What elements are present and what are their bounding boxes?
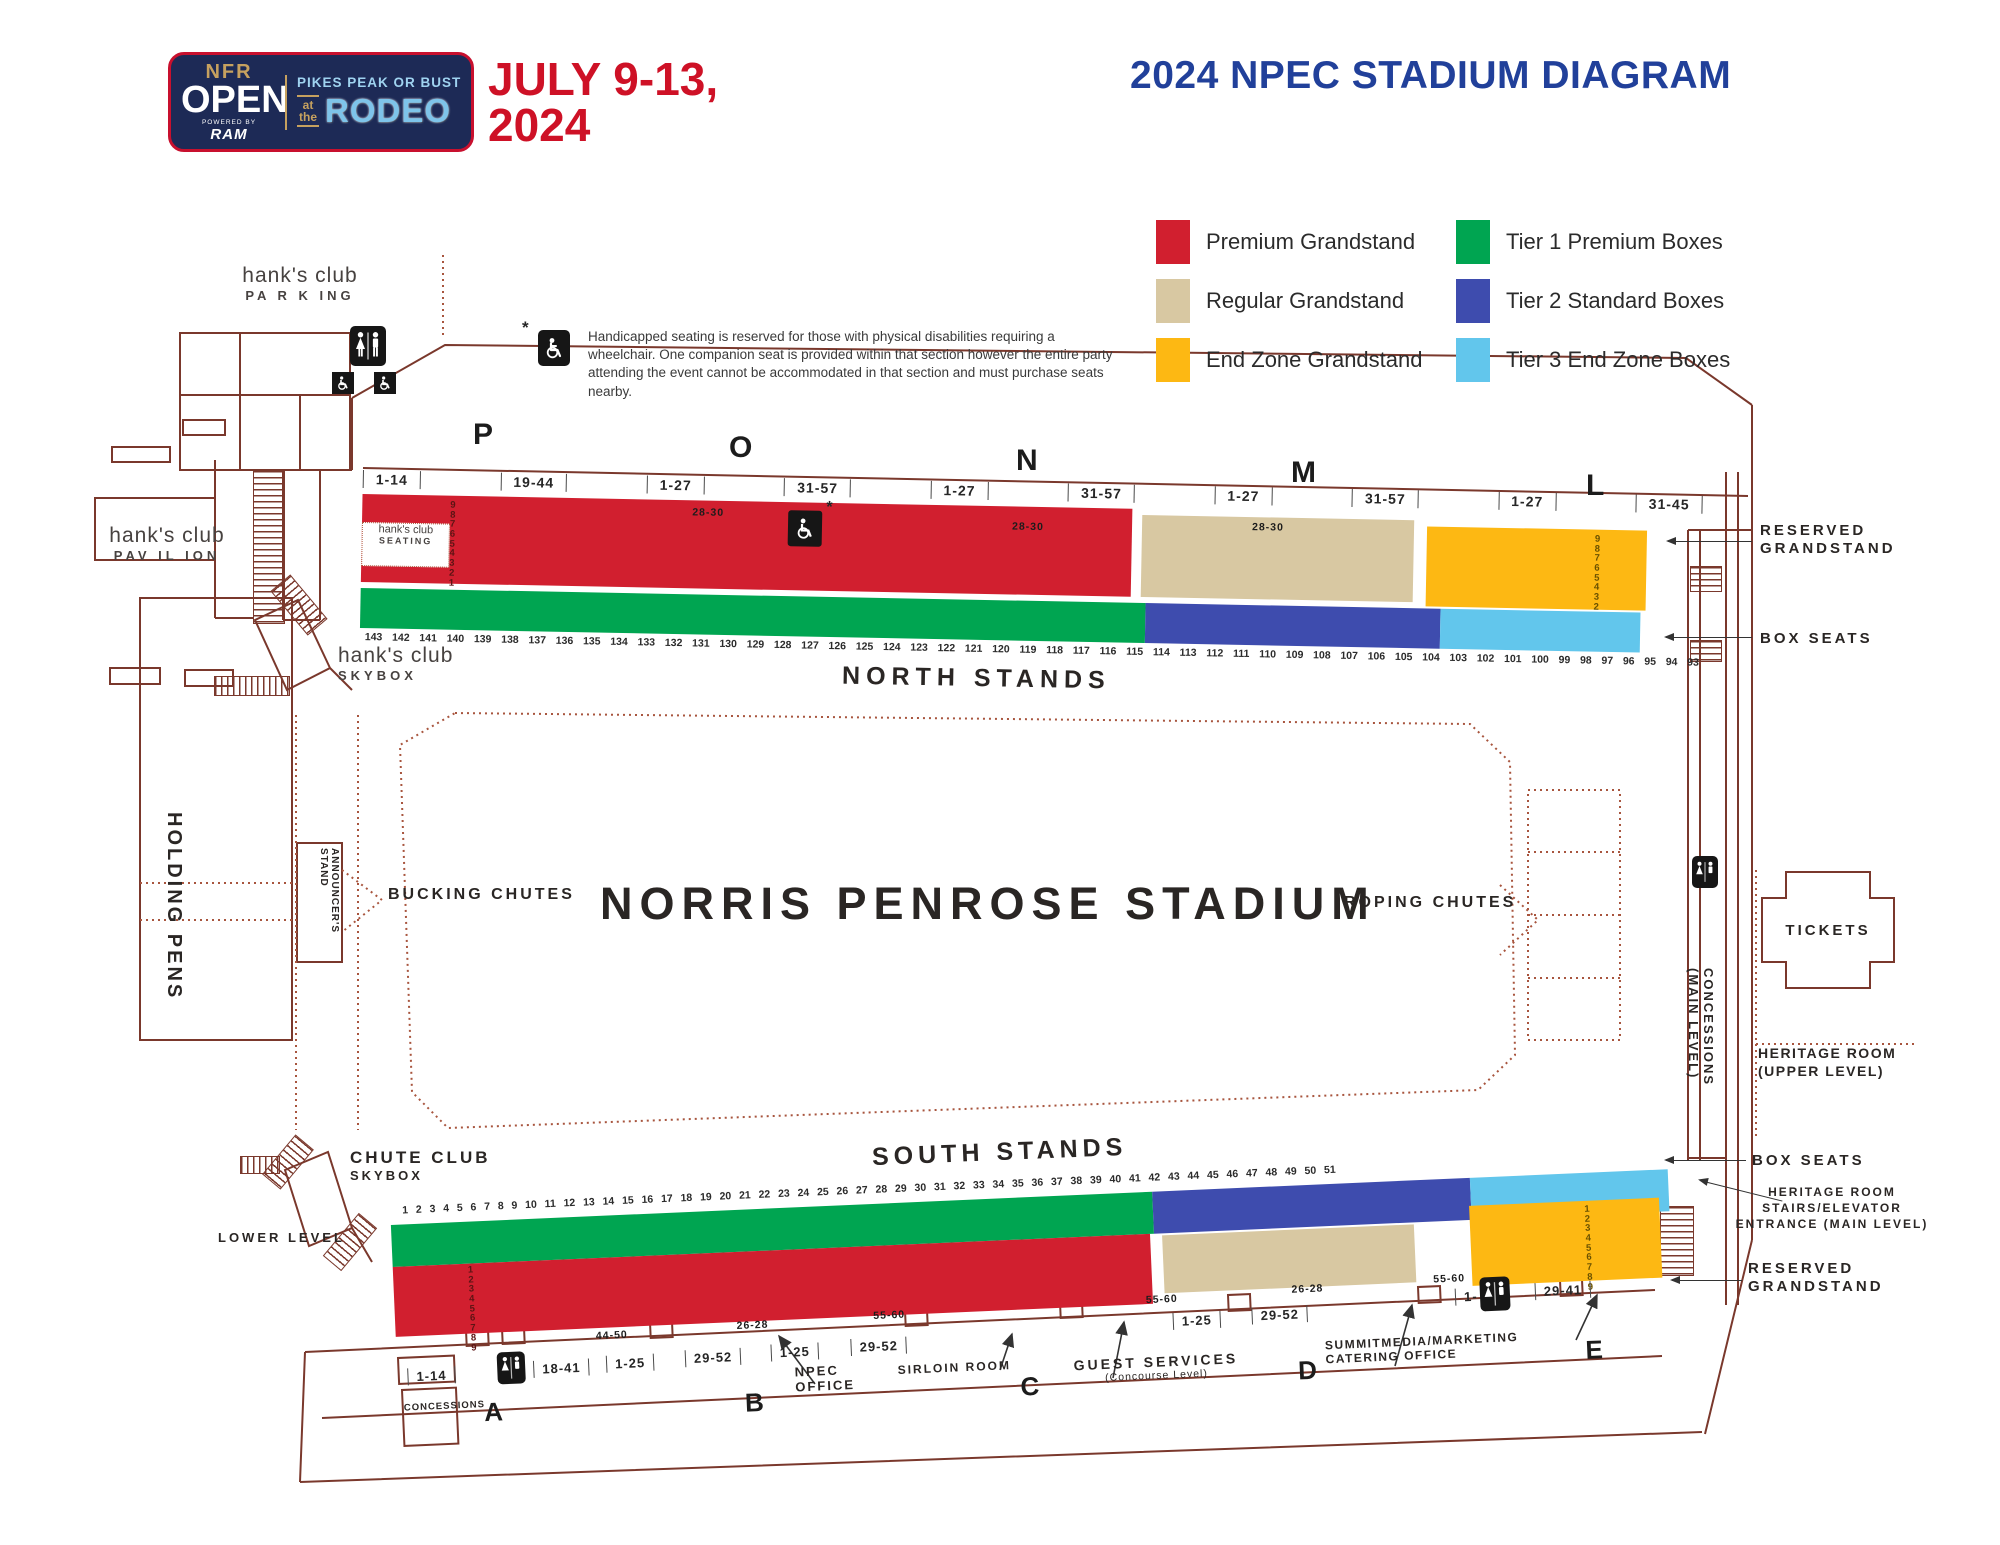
door-label: 26-28 xyxy=(736,1319,768,1332)
north-stands-label: NORTH STANDS xyxy=(842,662,1111,696)
box-number: 47 xyxy=(1246,1167,1258,1179)
page-title: 2024 NPEC STADIUM DIAGRAM xyxy=(1130,54,1650,98)
seat-range: 1-25 xyxy=(1172,1311,1221,1330)
box-number: 106 xyxy=(1368,650,1386,662)
box-number: 100 xyxy=(1531,653,1549,665)
box-number: 118 xyxy=(1046,644,1063,656)
logo-tagline: PIKES PEAK OR BUST xyxy=(297,75,461,90)
door-label: 26-28 xyxy=(1291,1282,1323,1295)
box-number: 97 xyxy=(1601,655,1613,667)
box-number: 23 xyxy=(778,1188,790,1200)
reserved-grandstand-north-label: RESERVED GRANDSTAND xyxy=(1760,522,1920,558)
box-number: 1 xyxy=(402,1204,408,1216)
box-number: 25 xyxy=(817,1186,829,1198)
accessible-icon xyxy=(332,372,354,394)
box-number: 120 xyxy=(992,643,1010,655)
box-number: 112 xyxy=(1206,647,1223,659)
box-number: 122 xyxy=(937,642,955,654)
chute-club-skybox-label: CHUTE CLUB SKYBOX xyxy=(350,1148,491,1183)
legend-item: Tier 3 End Zone Boxes xyxy=(1456,330,1786,389)
section-letter: N xyxy=(1016,444,1038,478)
event-dates: JULY 9-13, 2024 xyxy=(488,56,718,148)
legend-label: Tier 3 End Zone Boxes xyxy=(1506,347,1730,373)
legend-swatch xyxy=(1156,279,1190,323)
door-label: 55-60 xyxy=(873,1309,905,1322)
seat-range: 29-52 xyxy=(1251,1305,1308,1324)
seat-range: 19-44 xyxy=(500,473,567,492)
tier2-boxes-south xyxy=(1152,1178,1472,1234)
regular-grandstand-north: 28-30 xyxy=(1141,515,1415,602)
box-number: 108 xyxy=(1313,649,1331,661)
section-letter: M xyxy=(1291,456,1316,490)
box-seats-arrow xyxy=(1666,1160,1746,1161)
box-number: 26 xyxy=(836,1185,848,1197)
box-number: 13 xyxy=(583,1196,595,1208)
section-letter: P xyxy=(473,418,493,452)
endzone-grandstand-south: 1 2 3 4 5 6 7 8 9 xyxy=(1469,1198,1662,1286)
box-number: 2 xyxy=(416,1204,422,1216)
reserved-arrow xyxy=(1668,541,1752,542)
box-number: 22 xyxy=(758,1188,770,1200)
box-number: 15 xyxy=(622,1194,634,1206)
roping-chutes-label: ROPING CHUTES xyxy=(1344,894,1516,912)
box-number: 126 xyxy=(828,640,846,652)
door-label: 28-30 xyxy=(1252,521,1284,534)
tier3-boxes-north xyxy=(1440,609,1641,653)
box-number: 113 xyxy=(1179,647,1196,659)
section-letter: O xyxy=(729,431,752,465)
hanks-club-parking-label: hank's club PA R K ING xyxy=(215,264,385,303)
box-number: 6 xyxy=(470,1201,476,1213)
seat-range: 18-41 xyxy=(533,1358,590,1377)
box-number: 121 xyxy=(965,643,983,655)
wheelchair-icon xyxy=(538,330,570,366)
logo-right: PIKES PEAK OR BUST at the RODEO xyxy=(285,75,461,130)
box-number: 40 xyxy=(1109,1173,1121,1185)
box-number: 29 xyxy=(895,1182,907,1194)
note-asterisk: * xyxy=(522,318,529,338)
reserved-arrow xyxy=(1672,1280,1742,1281)
legend-swatch xyxy=(1456,279,1490,323)
regular-grandstand-south xyxy=(1162,1224,1416,1293)
legend-swatch xyxy=(1456,338,1490,382)
box-number: 128 xyxy=(774,639,792,651)
box-number: 116 xyxy=(1099,645,1116,657)
event-logo: NFR OPEN POWERED BY RAM PIKES PEAK OR BU… xyxy=(168,52,474,152)
box-number: 93 xyxy=(1687,656,1699,668)
restroom-icon xyxy=(497,1351,526,1384)
box-number: 39 xyxy=(1090,1174,1102,1186)
box-number: 24 xyxy=(797,1187,809,1199)
seat-range: 1-27 xyxy=(647,475,705,494)
box-number: 19 xyxy=(700,1191,712,1203)
box-number: 95 xyxy=(1644,656,1656,668)
box-number: 38 xyxy=(1070,1175,1082,1187)
box-number: 46 xyxy=(1226,1168,1238,1180)
box-number: 119 xyxy=(1019,644,1036,656)
legend-label: Premium Grandstand xyxy=(1206,229,1415,255)
box-number: 4 xyxy=(443,1202,449,1214)
box-number: 138 xyxy=(501,634,519,646)
seat-range: 29-52 xyxy=(685,1348,742,1367)
box-number: 142 xyxy=(392,632,410,644)
box-number: 44 xyxy=(1187,1170,1199,1182)
section-letter: B xyxy=(744,1387,764,1419)
npec-office-label: NPEC OFFICE xyxy=(794,1363,855,1395)
box-number: 140 xyxy=(447,633,465,645)
door-label: 28-30 xyxy=(692,506,724,519)
seat-range: 29-41 xyxy=(1534,1281,1591,1300)
sirloin-room-label: SIRLOIN ROOM xyxy=(897,1358,1011,1377)
legend-label: Tier 2 Standard Boxes xyxy=(1506,288,1724,314)
bucking-chutes-label: BUCKING CHUTES xyxy=(388,886,575,904)
box-number: 132 xyxy=(665,637,683,649)
concessions-label: CONCESSIONS xyxy=(404,1399,486,1414)
box-seats-south-label: BOX SEATS xyxy=(1752,1152,1865,1169)
box-number: 103 xyxy=(1449,652,1467,664)
logo-at-the: at the xyxy=(297,95,319,127)
box-number: 36 xyxy=(1031,1176,1043,1188)
box-number: 101 xyxy=(1504,653,1522,665)
logo-ram: RAM xyxy=(181,126,277,143)
heritage-room-upper-label: HERITAGE ROOM (UPPER LEVEL) xyxy=(1758,1044,1938,1080)
seat-range: 1-25 xyxy=(606,1354,655,1373)
accessible-icon xyxy=(374,372,396,394)
box-number: 8 xyxy=(498,1200,504,1212)
legend-item: Tier 2 Standard Boxes xyxy=(1456,271,1786,330)
box-number: 35 xyxy=(1012,1177,1024,1189)
box-number: 134 xyxy=(610,636,628,648)
legend-swatch xyxy=(1156,220,1190,264)
box-number: 111 xyxy=(1233,648,1250,660)
box-number: 123 xyxy=(910,642,928,654)
legend-swatch xyxy=(1156,338,1190,382)
seat-range: 1-14 xyxy=(363,470,421,489)
door-label: 44-50 xyxy=(596,1329,628,1342)
box-number: 17 xyxy=(661,1193,673,1205)
north-stands: 1-1419-441-2731-571-2731-571-2731-571-27… xyxy=(359,470,1707,686)
box-seats-north-label: BOX SEATS xyxy=(1760,630,1873,647)
legend: Premium Grandstand Regular Grandstand En… xyxy=(1156,212,1716,389)
box-number: 51 xyxy=(1324,1164,1336,1176)
box-number: 32 xyxy=(953,1180,965,1192)
box-number: 117 xyxy=(1073,645,1090,657)
seat-range: 31-57 xyxy=(1068,484,1135,503)
box-number: 110 xyxy=(1259,648,1276,660)
box-number: 130 xyxy=(719,638,737,650)
concessions-main-label: CONCESSIONS (MAIN LEVEL) xyxy=(1686,968,1716,1178)
announcers-stand-label: ANNOUNCER'S STAND xyxy=(300,848,340,960)
box-number: 3 xyxy=(429,1203,435,1215)
seat-range: 1-27 xyxy=(930,481,988,500)
seat-range: 31-57 xyxy=(1352,489,1419,508)
box-number: 107 xyxy=(1340,650,1358,662)
legend-swatch xyxy=(1456,220,1490,264)
box-number: 43 xyxy=(1168,1171,1180,1183)
box-number: 9 xyxy=(511,1199,517,1211)
box-number: 109 xyxy=(1286,649,1304,661)
box-number: 50 xyxy=(1304,1165,1316,1177)
box-number: 41 xyxy=(1129,1172,1141,1184)
box-number: 14 xyxy=(602,1195,614,1207)
reserved-grandstand-south-label: RESERVED GRANDSTAND xyxy=(1748,1260,1908,1296)
box-number: 105 xyxy=(1395,651,1413,663)
seat-range: 31-45 xyxy=(1636,494,1703,513)
box-number: 7 xyxy=(484,1201,490,1213)
logo-left: NFR OPEN POWERED BY RAM xyxy=(181,61,277,143)
door-label: 55-60 xyxy=(1146,1293,1178,1306)
seat-range: 1-27 xyxy=(1498,492,1556,511)
stadium-name: NORRIS PENROSE STADIUM xyxy=(600,878,1376,930)
box-number: 21 xyxy=(739,1189,751,1201)
box-number: 141 xyxy=(419,632,437,644)
box-number: 98 xyxy=(1580,654,1592,666)
box-number: 45 xyxy=(1207,1169,1219,1181)
box-seats-arrow xyxy=(1666,637,1752,638)
box-number: 124 xyxy=(883,641,901,653)
section-letter: D xyxy=(1297,1355,1317,1387)
box-number: 31 xyxy=(934,1181,946,1193)
legend-item: Tier 1 Premium Boxes xyxy=(1456,212,1786,271)
box-number: 96 xyxy=(1623,655,1635,667)
lower-level-label: LOWER LEVEL xyxy=(218,1230,345,1245)
box-number: 37 xyxy=(1051,1176,1063,1188)
box-number: 139 xyxy=(474,633,492,645)
seat-range: 1-14 xyxy=(407,1366,456,1385)
box-number: 99 xyxy=(1558,654,1570,666)
section-letter: C xyxy=(1020,1371,1040,1403)
box-number: 10 xyxy=(525,1199,537,1211)
box-number: 125 xyxy=(856,640,874,652)
box-number: 102 xyxy=(1477,652,1495,664)
box-number: 28 xyxy=(875,1183,887,1195)
legend-item: Regular Grandstand xyxy=(1156,271,1456,330)
stadium-diagram-page: NFR OPEN POWERED BY RAM PIKES PEAK OR BU… xyxy=(0,0,2000,1545)
box-number: 49 xyxy=(1285,1165,1297,1177)
restroom-icon xyxy=(1692,856,1718,888)
tier2-boxes-north xyxy=(1145,603,1441,649)
box-number: 42 xyxy=(1148,1171,1160,1183)
box-number: 34 xyxy=(992,1178,1004,1190)
legend-item: End Zone Grandstand xyxy=(1156,330,1456,389)
box-number: 129 xyxy=(747,638,765,650)
seat-range: 1-27 xyxy=(1214,486,1272,505)
stairs xyxy=(214,676,290,696)
box-number: 11 xyxy=(544,1198,556,1210)
legend-label: End Zone Grandstand xyxy=(1206,347,1422,373)
accessible-seating-icon xyxy=(788,510,823,547)
box-number: 143 xyxy=(365,631,383,643)
box-number: 127 xyxy=(801,639,819,651)
endzone-grandstand-north: 9 8 7 6 5 4 3 2 1 xyxy=(1426,526,1647,610)
premium-grandstand-north: hank's club SEATING 9 8 7 6 5 4 3 2 1 28… xyxy=(361,494,1133,597)
row-numbers: 1 2 3 4 5 6 7 8 9 xyxy=(1584,1205,1593,1292)
section-letter: E xyxy=(1585,1334,1604,1366)
box-number: 131 xyxy=(692,637,710,649)
door-label: 55-60 xyxy=(1433,1272,1465,1285)
box-number: 12 xyxy=(563,1197,575,1209)
seat-range: 1-25 xyxy=(770,1342,819,1361)
box-number: 136 xyxy=(556,635,574,647)
holding-pens-label: HOLDING PENS xyxy=(162,812,185,992)
box-number: 48 xyxy=(1265,1166,1277,1178)
logo-rodeo: RODEO xyxy=(325,92,451,130)
box-number: 115 xyxy=(1126,646,1143,658)
seat-range: 29-52 xyxy=(850,1337,907,1356)
restroom-icon xyxy=(350,326,386,366)
row-numbers: 1 2 3 4 5 6 7 8 9 xyxy=(468,1265,477,1352)
seat-range: 31-57 xyxy=(784,478,851,497)
row-numbers: 9 8 7 6 5 4 3 2 1 xyxy=(1593,535,1600,622)
box-number: 114 xyxy=(1153,646,1170,658)
box-number: 20 xyxy=(719,1190,731,1202)
section-letter: A xyxy=(483,1396,503,1428)
logo-open: OPEN xyxy=(181,84,277,116)
box-number: 18 xyxy=(680,1192,692,1204)
box-number: 33 xyxy=(973,1179,985,1191)
box-number: 137 xyxy=(528,634,546,646)
box-number: 30 xyxy=(914,1182,926,1194)
box-number: 16 xyxy=(641,1194,653,1206)
box-number: 104 xyxy=(1422,651,1440,663)
summitmedia-label: SUMMITMEDIA/MARKETING CATERING OFFICE xyxy=(1325,1330,1520,1366)
legend-label: Regular Grandstand xyxy=(1206,288,1404,314)
asterisk-marker: * xyxy=(826,499,833,517)
door-label: 28-30 xyxy=(1012,520,1044,533)
restroom-icon xyxy=(1479,1276,1510,1311)
box-number: 27 xyxy=(856,1184,868,1196)
guest-services-label: GUEST SERVICES (Concourse Level) xyxy=(1073,1350,1239,1385)
box-number: 133 xyxy=(637,636,655,648)
box-number: 135 xyxy=(583,635,601,647)
hanks-club-seating: hank's club SEATING xyxy=(361,522,450,568)
row-numbers: 9 8 7 6 5 4 3 2 1 xyxy=(449,501,456,588)
box-number: 94 xyxy=(1666,656,1678,668)
heritage-stairs-label: HERITAGE ROOM STAIRS/ELEVATOR ENTRANCE (… xyxy=(1732,1184,1932,1233)
handicapped-note: Handicapped seating is reserved for thos… xyxy=(588,328,1122,401)
hanks-club-pavilion-label: hank's club PAV IL ION xyxy=(92,524,242,563)
legend-label: Tier 1 Premium Boxes xyxy=(1506,229,1723,255)
box-number: 5 xyxy=(457,1202,463,1214)
tickets-label: TICKETS xyxy=(1773,922,1883,939)
legend-item: Premium Grandstand xyxy=(1156,212,1456,271)
